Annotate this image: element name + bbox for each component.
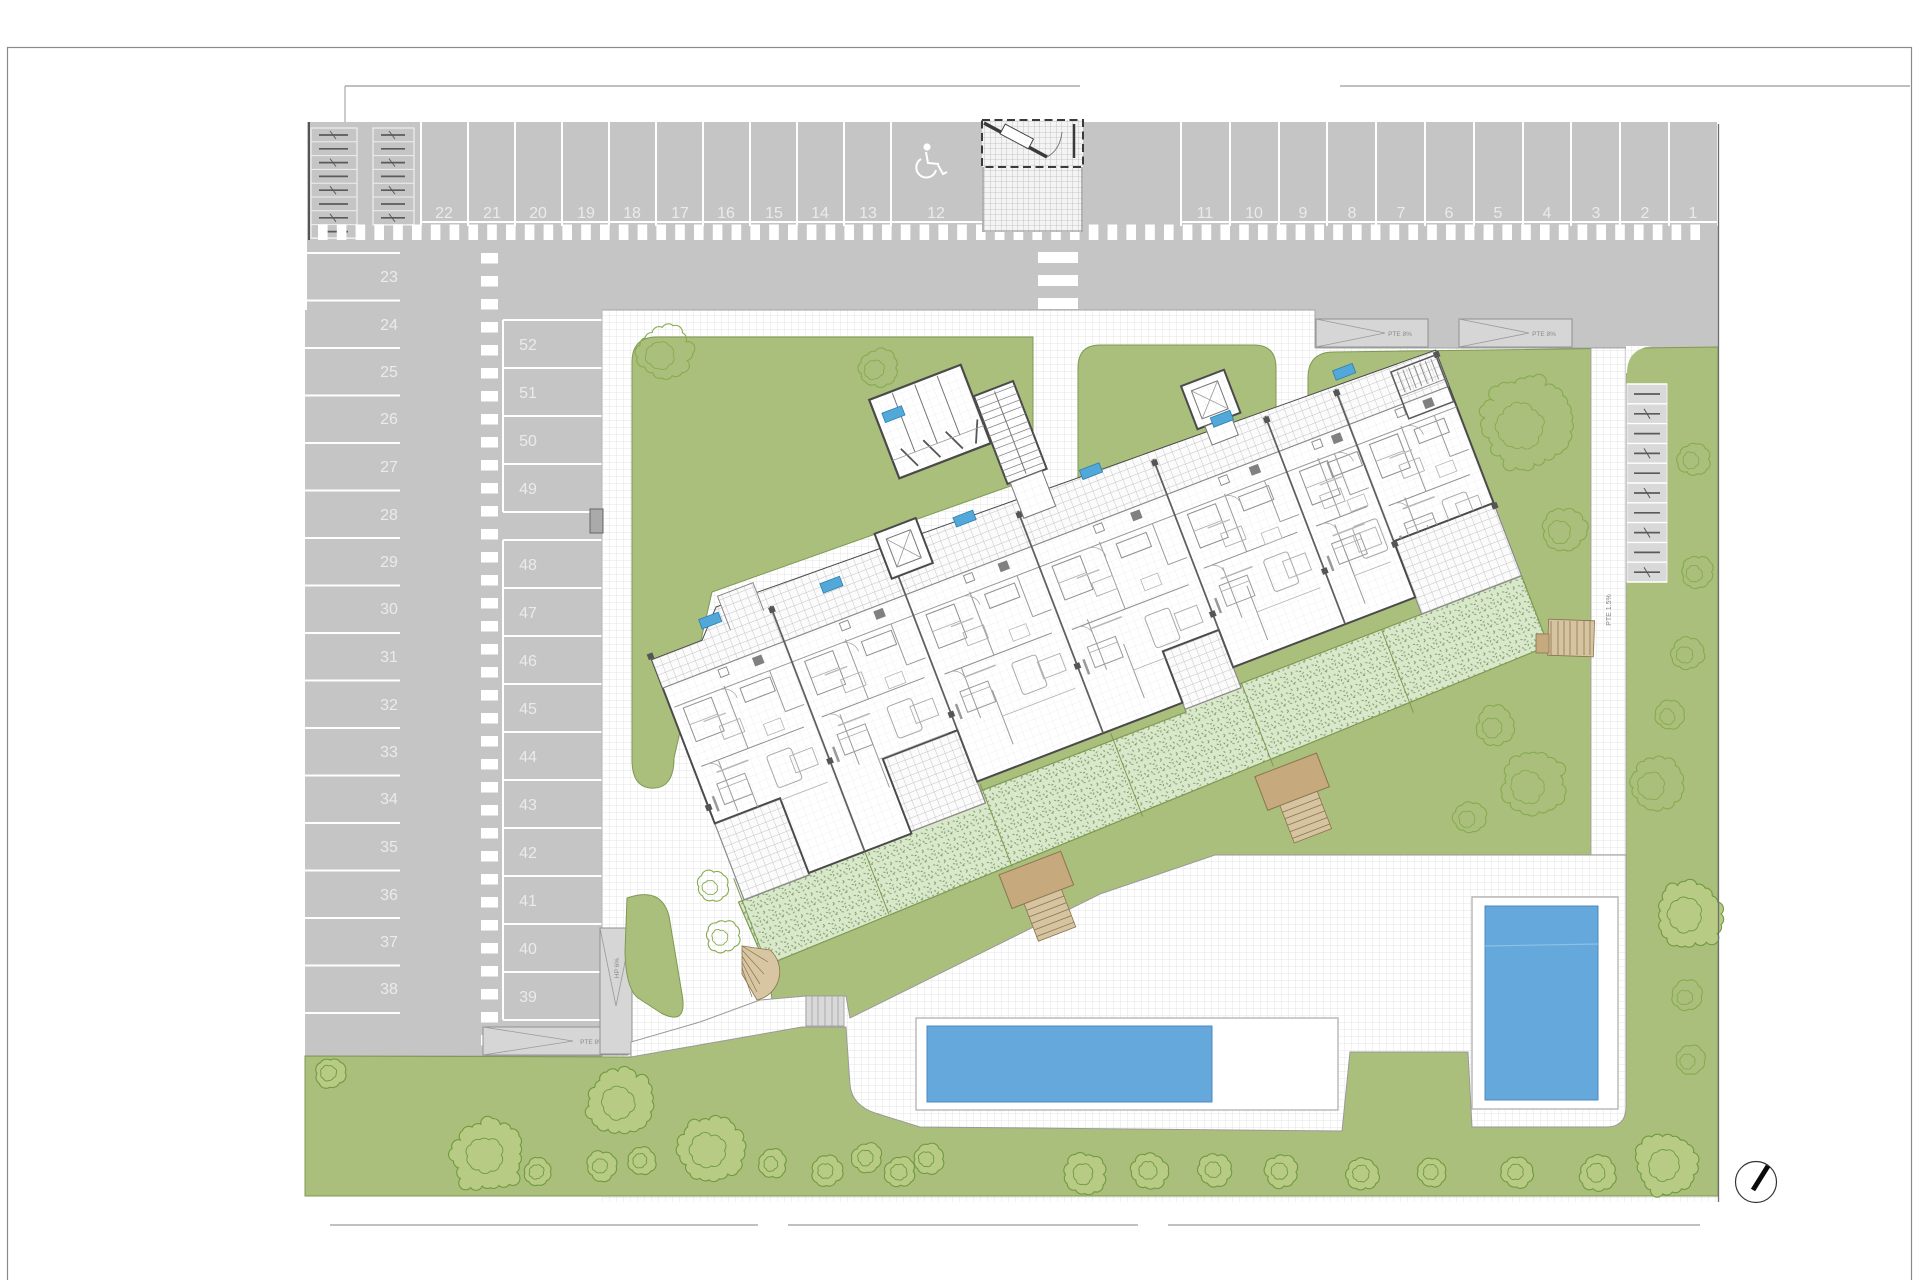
svg-text:46: 46: [519, 653, 537, 670]
svg-text:PTE 8%: PTE 8%: [1532, 331, 1556, 338]
svg-text:31: 31: [380, 649, 398, 666]
svg-text:11: 11: [1197, 205, 1214, 222]
svg-text:49: 49: [519, 481, 537, 498]
svg-text:4: 4: [1543, 205, 1552, 222]
svg-text:39: 39: [519, 989, 537, 1006]
svg-text:13: 13: [859, 205, 877, 222]
svg-text:24: 24: [380, 317, 398, 334]
svg-text:48: 48: [519, 557, 537, 574]
svg-text:10: 10: [1245, 205, 1263, 222]
svg-text:15: 15: [765, 205, 783, 222]
svg-text:36: 36: [380, 887, 398, 904]
svg-text:PTE 8%: PTE 8%: [1388, 331, 1412, 338]
svg-text:51: 51: [519, 385, 537, 402]
svg-text:47: 47: [519, 605, 537, 622]
svg-text:5: 5: [1494, 205, 1503, 222]
svg-text:20: 20: [529, 205, 547, 222]
svg-text:41: 41: [519, 893, 537, 910]
svg-text:22: 22: [435, 205, 453, 222]
svg-text:44: 44: [519, 749, 537, 766]
svg-text:19: 19: [577, 205, 595, 222]
svg-text:8: 8: [1348, 205, 1357, 222]
svg-text:HP 6%: HP 6%: [614, 958, 621, 978]
svg-text:2: 2: [1641, 205, 1650, 222]
svg-text:25: 25: [380, 364, 398, 381]
svg-text:33: 33: [380, 744, 398, 761]
svg-text:30: 30: [380, 601, 398, 618]
svg-text:3: 3: [1592, 205, 1601, 222]
svg-text:12: 12: [927, 205, 945, 222]
svg-text:9: 9: [1299, 205, 1308, 222]
svg-text:26: 26: [380, 411, 398, 428]
svg-text:18: 18: [623, 205, 641, 222]
svg-text:16: 16: [717, 205, 735, 222]
svg-text:17: 17: [671, 205, 689, 222]
svg-text:27: 27: [380, 459, 398, 476]
svg-text:PTE 1.5%: PTE 1.5%: [1606, 594, 1613, 626]
svg-text:14: 14: [811, 205, 829, 222]
svg-text:29: 29: [380, 554, 398, 571]
svg-text:52: 52: [519, 337, 537, 354]
svg-text:23: 23: [380, 269, 398, 286]
svg-text:50: 50: [519, 433, 537, 450]
svg-text:7: 7: [1397, 205, 1406, 222]
svg-text:35: 35: [380, 839, 398, 856]
svg-text:1: 1: [1689, 205, 1698, 222]
svg-text:38: 38: [380, 981, 398, 998]
svg-text:43: 43: [519, 797, 537, 814]
svg-text:37: 37: [380, 934, 398, 951]
svg-text:21: 21: [483, 205, 501, 222]
svg-text:28: 28: [380, 507, 398, 524]
svg-text:40: 40: [519, 941, 537, 958]
svg-text:45: 45: [519, 701, 537, 718]
svg-text:42: 42: [519, 845, 537, 862]
svg-text:34: 34: [380, 791, 398, 808]
svg-text:32: 32: [380, 697, 398, 714]
svg-text:6: 6: [1445, 205, 1454, 222]
